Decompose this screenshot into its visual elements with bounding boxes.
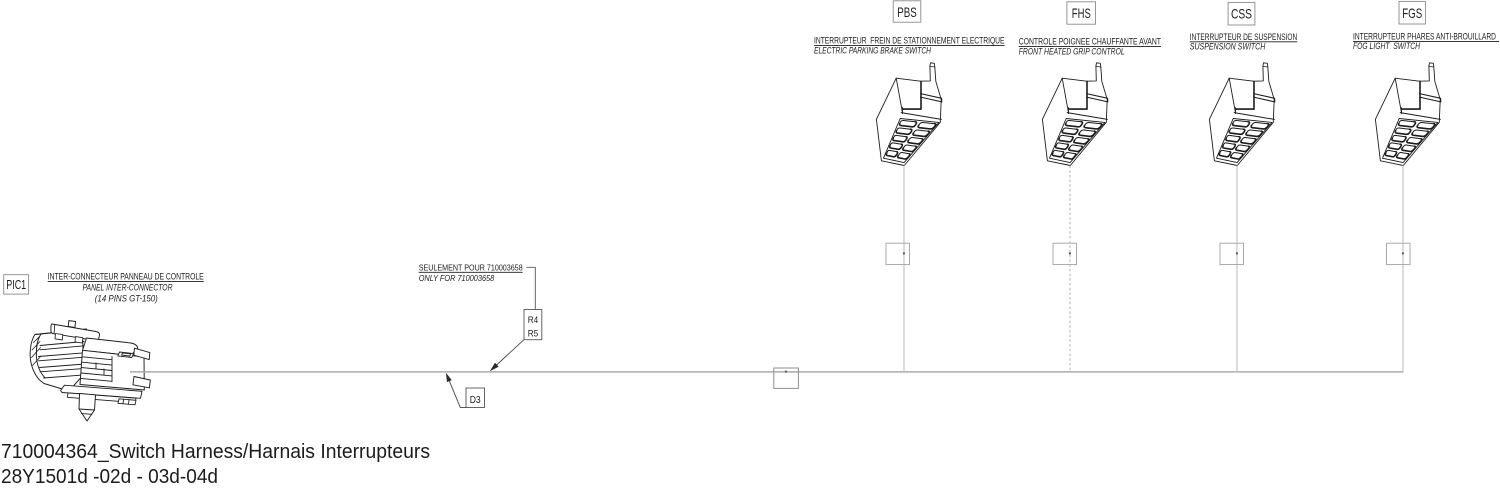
svg-text:PIC1: PIC1	[6, 277, 26, 292]
svg-text:28Y1501d -02d - 03d-04d: 28Y1501d -02d - 03d-04d	[1, 466, 218, 488]
svg-text:PANEL INTER-CONNECTOR: PANEL INTER-CONNECTOR	[83, 282, 173, 293]
svg-text:FHS: FHS	[1072, 6, 1091, 21]
svg-text:SEULEMENT POUR 710003658: SEULEMENT POUR 710003658	[419, 263, 523, 273]
svg-text:FGS: FGS	[1402, 6, 1422, 21]
svg-text:710004364_Switch Harness/Harna: 710004364_Switch Harness/Harnais Interru…	[1, 441, 430, 463]
svg-text:PBS: PBS	[897, 5, 917, 20]
svg-text:D3: D3	[470, 395, 481, 406]
svg-text:FOG LIGHT SWITCH: FOG LIGHT SWITCH	[1353, 40, 1420, 51]
svg-text:FRONT HEATED GRIP CONTROL: FRONT HEATED GRIP CONTROL	[1019, 45, 1125, 56]
svg-text:R5: R5	[528, 328, 539, 339]
svg-text:ONLY FOR 710003658: ONLY FOR 710003658	[419, 273, 495, 283]
svg-text:R4: R4	[528, 315, 539, 326]
svg-text:(14 PINS GT-150): (14 PINS GT-150)	[95, 293, 158, 304]
svg-text:SUSPENSION SWITCH: SUSPENSION SWITCH	[1190, 41, 1266, 52]
svg-text:CSS: CSS	[1231, 7, 1252, 22]
svg-text:ELECTRIC PARKING BRAKE SWITCH: ELECTRIC PARKING BRAKE SWITCH	[814, 45, 931, 56]
svg-text:INTER-CONNECTEUR PANNEAU DE CO: INTER-CONNECTEUR PANNEAU DE CONTROLE	[48, 270, 204, 281]
